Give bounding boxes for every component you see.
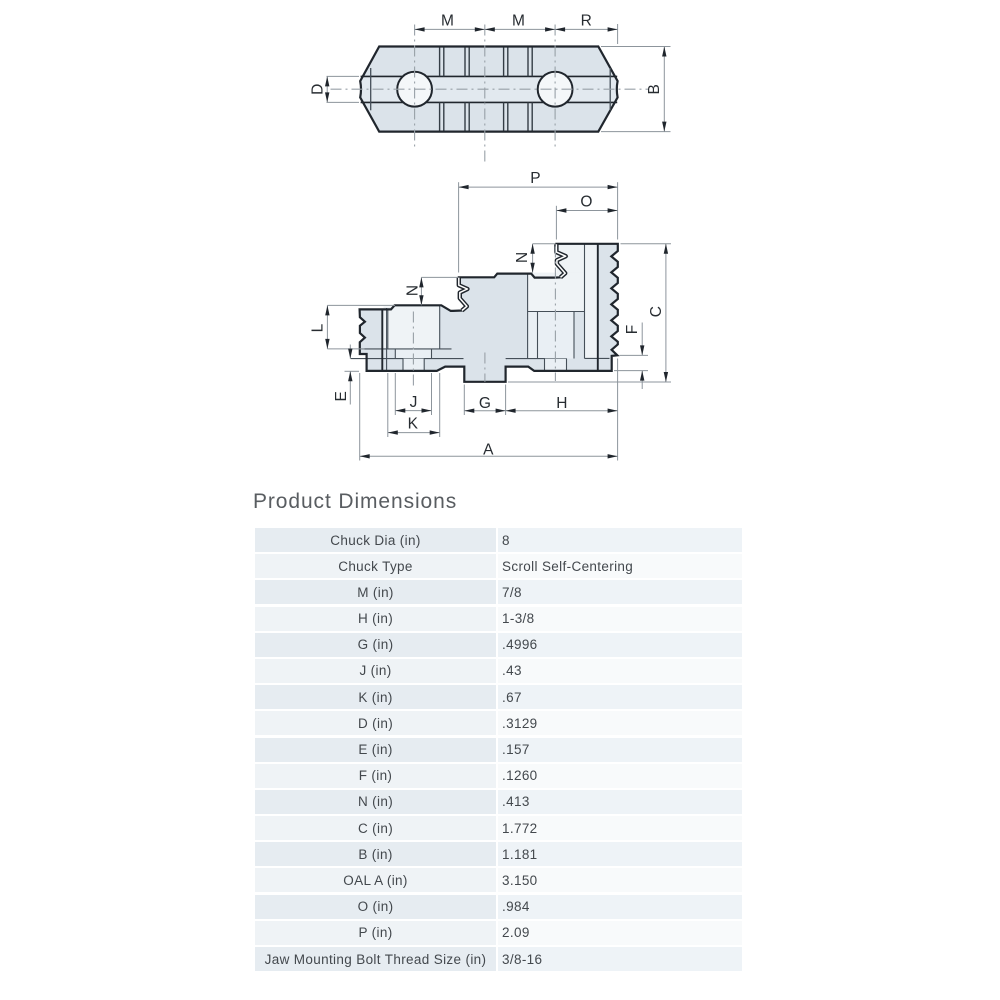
svg-text:O: O bbox=[580, 194, 592, 211]
svg-text:A: A bbox=[483, 442, 494, 459]
svg-text:D: D bbox=[310, 84, 327, 95]
svg-text:B: B bbox=[646, 84, 663, 94]
svg-text:P: P bbox=[530, 170, 540, 187]
svg-text:M: M bbox=[441, 13, 454, 30]
svg-text:F: F bbox=[624, 325, 641, 334]
svg-text:L: L bbox=[310, 323, 327, 332]
svg-text:N: N bbox=[404, 285, 421, 296]
svg-text:H: H bbox=[556, 395, 567, 412]
svg-text:M: M bbox=[512, 13, 525, 30]
svg-text:C: C bbox=[648, 306, 665, 317]
svg-text:R: R bbox=[581, 13, 592, 30]
svg-text:N: N bbox=[514, 252, 531, 263]
svg-text:K: K bbox=[408, 416, 419, 433]
svg-text:E: E bbox=[333, 391, 350, 401]
svg-text:G: G bbox=[479, 395, 491, 412]
svg-text:J: J bbox=[410, 394, 418, 411]
